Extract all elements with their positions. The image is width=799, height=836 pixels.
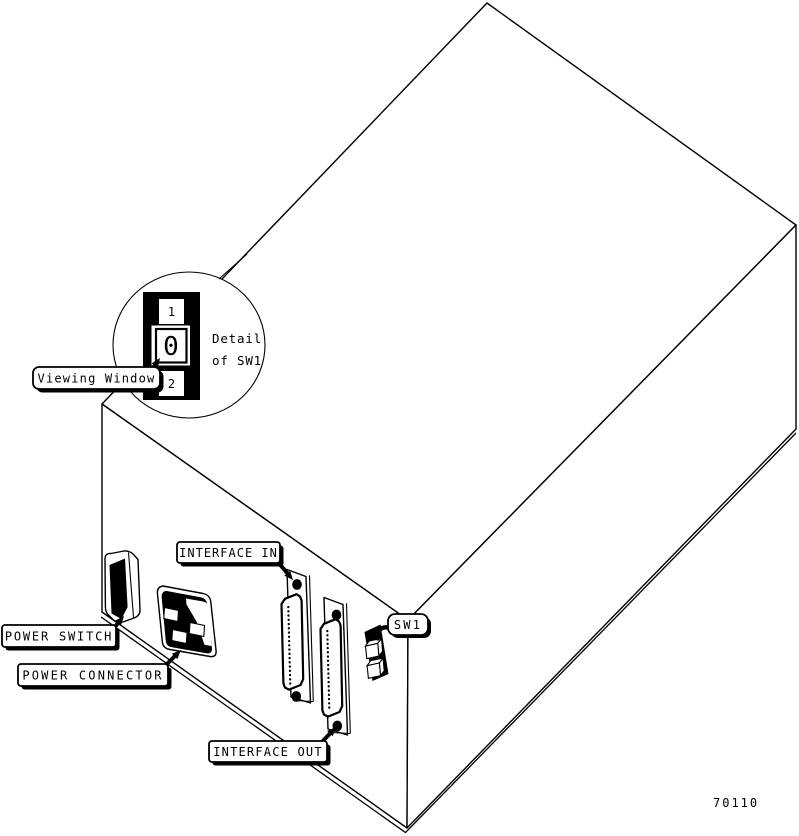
interface-in-bottom-screw-hole	[292, 691, 302, 702]
label-text: Viewing Window	[38, 372, 156, 386]
power-connector-pin-slot-3	[189, 623, 204, 637]
interface-out-label: INTERFACE OUT	[209, 741, 331, 766]
figure-number: 70110	[713, 796, 759, 810]
interface-in-label: INTERFACE IN	[177, 542, 284, 567]
interface-in-body	[282, 594, 304, 689]
interface-out-body	[321, 619, 343, 716]
detail-caption-line2: of SW1	[212, 353, 262, 368]
label-text: SW1	[394, 618, 422, 632]
rear-view-diagram: 1 0 2 Detail of SW1	[0, 0, 799, 836]
power-connector	[157, 586, 216, 657]
switch-position-2-label: 2	[168, 377, 175, 391]
power-switch-label: POWER SWITCH	[2, 625, 120, 651]
device-box	[101, 3, 796, 833]
switch-position-1-label: 1	[168, 305, 175, 319]
viewing-window-label: Viewing Window	[33, 367, 164, 393]
label-text: INTERFACE OUT	[213, 745, 323, 759]
power-connector-pin-slot-1	[164, 608, 179, 622]
power-connector-pin-slot-2	[172, 630, 187, 644]
power-switch-rocker	[110, 559, 128, 620]
label-text: POWER CONNECTOR	[22, 669, 163, 683]
interface-in-top-screw-hole	[292, 579, 302, 590]
power-connector-label: POWER CONNECTOR	[18, 664, 172, 690]
viewing-window-digit: 0	[163, 332, 179, 362]
sw1-label: SW1	[388, 614, 431, 638]
label-text: INTERFACE IN	[179, 546, 278, 560]
power-switch	[105, 551, 140, 622]
detail-caption-line1: Detail	[212, 331, 262, 346]
label-text: POWER SWITCH	[5, 630, 113, 644]
technical-illustration-rear-view: 1 0 2 Detail of SW1	[0, 0, 799, 836]
